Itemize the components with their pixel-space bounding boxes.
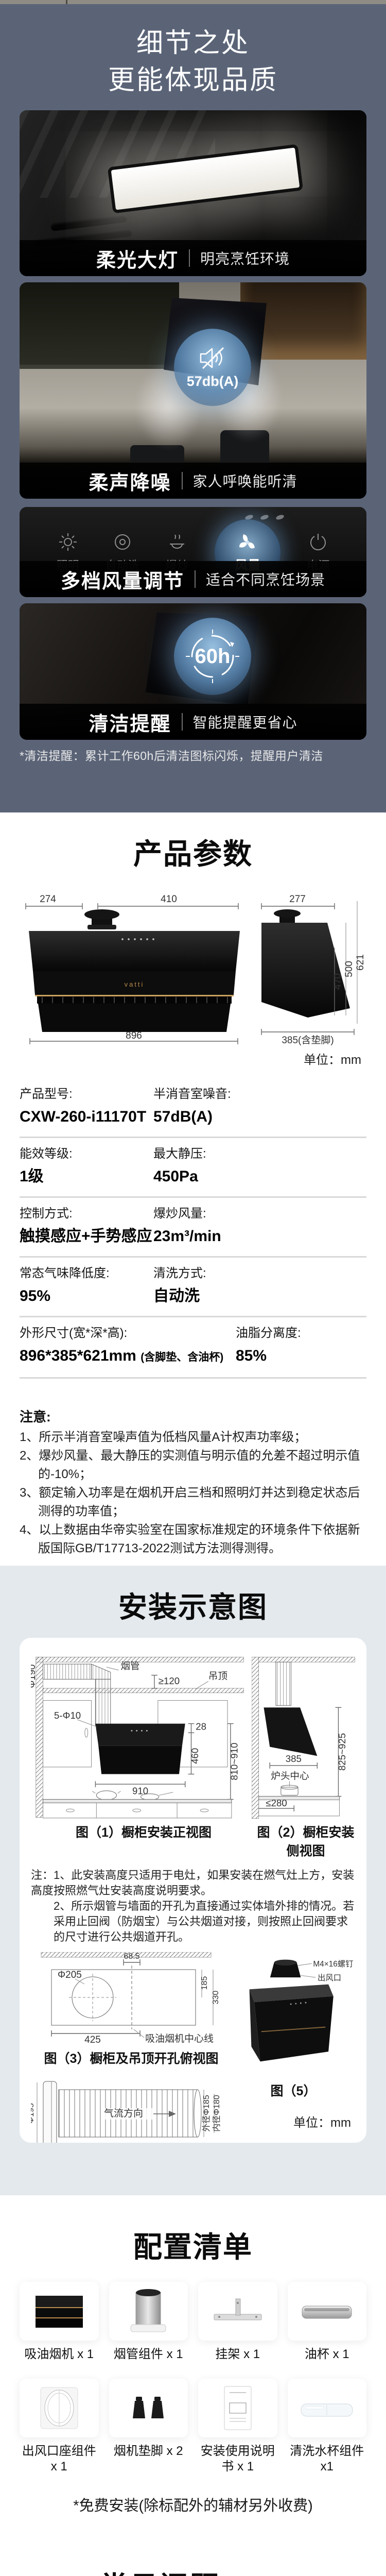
svg-text:28: 28 (196, 1721, 206, 1732)
svg-text:274: 274 (40, 894, 56, 905)
svg-text:460: 460 (189, 1748, 200, 1764)
autowash-icon (112, 532, 133, 552)
figure-1-front-install: 烟管 ≥120 吊顶 Φ190 5-Φ10 28 460 (31, 1655, 248, 1820)
bracket-thumb-icon (207, 2285, 269, 2337)
note-item: 1、所示半消音室噪声值为低档风量A计权声功率级； (20, 1428, 366, 1447)
config-item-label: 吸油烟机 x 1 (24, 2347, 94, 2362)
figure-4-duct: Φ195 气流方向 外径Φ185 内径Φ180 (31, 2072, 221, 2143)
config-item-bracket: 挂架 x 1 (198, 2282, 277, 2362)
note-item: 3、额定输入功率是在烟机开启三档和照明灯并达到稳定状态后测得的功率值； (20, 1484, 366, 1521)
svg-text:内径Φ180: 内径Φ180 (212, 2095, 221, 2132)
svg-text:气流方向: 气流方向 (104, 2108, 143, 2119)
svg-text:出风口: 出风口 (318, 1973, 341, 1982)
svg-text:277: 277 (289, 894, 306, 905)
spec-row: 产品型号:CXW-260-i11170T 半消音室噪音:57dB(A) (20, 1078, 366, 1138)
spec-value: 23m³/min (153, 1228, 366, 1245)
spec-value: 自动洗 (153, 1287, 366, 1305)
bracket-thumb (198, 2282, 277, 2341)
config-item-label: 安装使用说明书 x 1 (198, 2444, 277, 2475)
product-params-section: 产品参数 274 410 vatti (0, 812, 386, 1566)
cleaning-cup-thumb-icon (296, 2382, 358, 2434)
svg-text:385: 385 (286, 1753, 302, 1764)
config-title: 配置清单 (0, 2232, 386, 2262)
config-item-label: 烟管组件 x 1 (114, 2347, 183, 2362)
feature-title: 清洁提醒 (89, 708, 171, 736)
outlet-seat-thumb-icon (28, 2382, 90, 2434)
dimension-drawing: 274 410 vatti 896 277 (20, 894, 366, 1048)
caption-bar: 柔光大灯 明亮烹饪环境 (20, 240, 366, 276)
feet-thumb (109, 2379, 188, 2437)
feature-subtitle: 家人呼唤能听清 (193, 470, 297, 491)
spec-label: 外形尺寸(宽*深*高): (20, 1327, 236, 1340)
config-item-cleaning-cup: 清洗水杯组件x1 (288, 2379, 367, 2475)
feature-card-clean-reminder: 60h 清洁提醒 智能提醒更省心 (20, 603, 366, 740)
clean-badge: 60h (174, 618, 251, 695)
spec-row: 外形尺寸(宽*深*高): 896*385*621mm (含脚垫、含油杯) 油脂分… (20, 1317, 366, 1379)
manual-thumb (198, 2379, 277, 2437)
oilcup-thumb (288, 2282, 367, 2341)
config-item-manual: 安装使用说明书 x 1 (198, 2379, 277, 2475)
spec-label: 控制方式: (20, 1207, 153, 1221)
fan-icon (236, 531, 259, 554)
install-notes: 注：1、此安装高度只适用于电灶，如果安装在燃气灶上方，安装高度按照燃气灶安装高度… (31, 1868, 355, 1945)
mute-speaker-icon (199, 346, 226, 370)
note-item: 2、爆炒风量、最大静压的实测值与明示值的允差不超过明示值的-10%； (20, 1447, 366, 1484)
spec-notes: 注意: 1、所示半消音室噪声值为低档风量A计权声功率级； 2、爆炒风量、最大静压… (20, 1408, 366, 1558)
spec-row: 能效等级:1级 最大静压:450Pa (20, 1138, 366, 1198)
oilcup-thumb-icon (296, 2285, 358, 2337)
figure-3-caption: 图（3）橱柜及吊顶开孔俯视图 (31, 2048, 232, 2067)
config-footnote: *免费安装(除标配外的辅材另外收费) (0, 2497, 386, 2515)
figure-5-caption: 图（5） (271, 2081, 317, 2099)
config-section: 配置清单 吸油烟机 x 1 (0, 2195, 386, 2576)
spec-value: CXW-260-i11170T (20, 1108, 153, 1126)
install-card: 烟管 ≥120 吊顶 Φ190 5-Φ10 28 460 (20, 1638, 366, 2143)
config-item-label: 油杯 x 1 (305, 2347, 349, 2362)
hood-thumb-icon (28, 2285, 90, 2337)
note-prefix: 注： (31, 1869, 54, 1882)
svg-text:吸油烟机中心线: 吸油烟机中心线 (145, 2033, 214, 2044)
spec-label: 油脂分离度: (236, 1327, 366, 1340)
hero-title: 细节之处 更能体现品质 (0, 25, 386, 99)
config-item-outlet-seat: 出风口座组件 x 1 (20, 2379, 99, 2475)
spec-value: 57dB(A) (153, 1108, 366, 1126)
hero-section: 细节之处 更能体现品质 柔光大灯 明亮烹饪环境 (0, 4, 386, 812)
svg-text:825~925: 825~925 (337, 1733, 347, 1771)
config-grid: 吸油烟机 x 1 烟管组件 x 1 挂架 x 1 (20, 2282, 366, 2475)
feature-card-low-noise: 57db(A) 柔声降噪 家人呼唤能听清 (20, 282, 366, 499)
caption-bar: 多档风量调节 适合不同烹饪场景 (20, 561, 366, 597)
spec-label: 半消音室噪音: (153, 1088, 366, 1101)
figure-2-side-install: 385 825~925 炉头中心 ≤280 (252, 1655, 355, 1820)
svg-text:外径Φ185: 外径Φ185 (202, 2095, 211, 2132)
power-icon (308, 532, 328, 552)
noise-badge: 57db(A) (174, 329, 251, 406)
svg-text:810~910: 810~910 (229, 1743, 240, 1781)
svg-text:≥120: ≥120 (159, 1675, 180, 1686)
svg-text:烟管: 烟管 (120, 1660, 139, 1671)
svg-text:Φ190: Φ190 (31, 1665, 37, 1688)
feature-subtitle: 适合不同烹饪场景 (206, 569, 325, 589)
svg-text:410: 410 (161, 894, 177, 905)
spec-row: 常态气味降低度:95% 清洗方式:自动洗 (20, 1258, 366, 1317)
brand-logo: vatti (125, 980, 145, 988)
svg-text:185: 185 (200, 1976, 209, 1990)
config-item-label: 烟机垫脚 x 2 (114, 2444, 183, 2459)
svg-text:5-Φ10: 5-Φ10 (54, 1710, 81, 1721)
svg-text:≤280: ≤280 (266, 1798, 287, 1808)
install-note-2: 2、所示烟管与墙面的开孔为直接通过实体墙外排的情况。若采用止回阀（防烟宝）与公共… (31, 1899, 355, 1945)
feature-title: 多档风量调节 (61, 565, 184, 594)
svg-text:896: 896 (126, 1030, 142, 1041)
feet-thumb-icon (117, 2382, 179, 2434)
figure-2-caption: 图（2）橱柜安装侧视图 (257, 1825, 355, 1858)
caption-divider (182, 713, 183, 731)
svg-text:炉头中心: 炉头中心 (271, 1770, 309, 1781)
notes-title: 注意: (20, 1408, 366, 1426)
feature-subtitle: 明亮烹饪环境 (200, 248, 290, 268)
clock-ring-icon (183, 626, 242, 686)
svg-text:425: 425 (84, 2035, 101, 2045)
install-note-1: 1、此安装高度只适用于电灶，如果安装在燃气灶上方，安装高度按照燃气灶安装高度说明… (31, 1869, 354, 1897)
front-view: 274 410 vatti 896 (26, 894, 240, 1044)
caption-bar: 柔声降噪 家人呼唤能听清 (20, 463, 366, 499)
config-item-feet: 烟机垫脚 x 2 (109, 2379, 188, 2475)
feature-card-soft-light: 柔光大灯 明亮烹饪环境 (20, 110, 366, 276)
side-view: 277 470 500 621 385(含垫脚) (261, 894, 366, 1046)
kitchen-cabinet-left (20, 282, 179, 369)
spec-value: 触摸感应+手势感应 (20, 1228, 153, 1245)
outlet-seat-thumb (20, 2379, 99, 2437)
figure-5-photo: M4×16螺钉 出风口 (232, 1952, 355, 2081)
feature-subtitle: 智能提醒更省心 (193, 711, 297, 732)
clean-reminder-footnote: *清洁提醒：累计工作60h后清洁图标闪烁，提醒用户清洁 (20, 746, 366, 764)
svg-text:385(含垫脚): 385(含垫脚) (282, 1035, 334, 1046)
config-item-hood: 吸油烟机 x 1 (20, 2282, 99, 2362)
dimension-diagram: 274 410 vatti 896 277 (20, 894, 366, 1064)
cleaning-cup-thumb (288, 2379, 367, 2437)
grille-slot (50, 214, 128, 231)
manual-thumb-icon (207, 2382, 269, 2434)
caption-bar: 清洁提醒 智能提醒更省心 (20, 704, 366, 740)
spec-value-note: (含脚垫、含油杯) (141, 1351, 223, 1363)
spec-label: 常态气味降低度: (20, 1267, 153, 1280)
spec-label: 清洗方式: (153, 1267, 366, 1280)
svg-text:Φ205: Φ205 (58, 1970, 82, 1980)
svg-text:621: 621 (355, 954, 366, 971)
svg-text:500: 500 (344, 961, 355, 977)
top-remnant-strip (0, 0, 386, 4)
light-icon (58, 532, 78, 552)
spec-value: 85% (236, 1347, 366, 1365)
svg-text:M4×16螺钉: M4×16螺钉 (313, 1959, 353, 1969)
qa-title: 常见问题Q&A (0, 2572, 386, 2576)
duct-thumb-icon (117, 2285, 179, 2337)
spec-value: 1级 (20, 1168, 153, 1185)
spec-label: 最大静压: (153, 1147, 366, 1161)
stirfry-icon (167, 532, 187, 552)
config-item-label: 清洗水杯组件x1 (288, 2444, 367, 2475)
duct-thumb (109, 2282, 188, 2341)
unit-note: 单位：mm (25, 1049, 361, 1064)
config-item-label: 挂架 x 1 (215, 2347, 260, 2362)
svg-text:吊顶: 吊顶 (208, 1670, 227, 1681)
feature-title: 柔声降噪 (89, 467, 171, 495)
divider (66, 0, 67, 4)
install-unit-note: 单位：mm (293, 2112, 351, 2130)
spec-label: 爆炒风量: (153, 1207, 366, 1221)
spec-value: 450Pa (153, 1168, 366, 1185)
spec-value: 896*385*621mm (含脚垫、含油杯) (20, 1347, 236, 1366)
config-item-duct: 烟管组件 x 1 (109, 2282, 188, 2362)
spec-row: 控制方式:触摸感应+手势感应 爆炒风量:23m³/min (20, 1198, 366, 1258)
feature-card-wind-levels: 照明 自动洗 爆炒 (20, 507, 366, 597)
note-item: 4、以上数据由华帝实验室在国家标准规定的环境条件下依据新版国际GB/T17713… (20, 1521, 366, 1558)
hood-thumb (20, 2282, 99, 2341)
caption-divider (195, 570, 196, 588)
svg-text:470: 470 (332, 973, 343, 990)
caption-divider (182, 472, 183, 489)
config-item-oilcup: 油杯 x 1 (288, 2282, 367, 2362)
spec-label: 产品型号: (20, 1088, 153, 1101)
figure-3-topview: 68.5 Φ205 425 185 330 吸油烟机中心线 (31, 1952, 221, 2045)
svg-text:68.5: 68.5 (124, 1952, 139, 1961)
install-section: 安装示意图 烟管 ≥120 吊顶 Φ190 (0, 1566, 386, 2195)
noise-value: 57db(A) (187, 374, 239, 389)
svg-text:330: 330 (212, 1991, 220, 2005)
caption-divider (189, 249, 190, 267)
spec-value: 95% (20, 1287, 153, 1305)
spec-label: 能效等级: (20, 1147, 153, 1161)
spec-table: 产品型号:CXW-260-i11170T 半消音室噪音:57dB(A) 能效等级… (20, 1078, 366, 1379)
figure-1-caption: 图（1）橱柜安装正视图 (76, 1825, 212, 1840)
hero-title-line2: 更能体现品质 (0, 62, 386, 99)
svg-text:Φ195: Φ195 (31, 2103, 36, 2124)
hero-title-line1: 细节之处 (0, 25, 386, 62)
feature-title: 柔光大灯 (96, 244, 179, 273)
params-title: 产品参数 (0, 839, 386, 869)
install-title: 安装示意图 (0, 1592, 386, 1622)
config-item-label: 出风口座组件 x 1 (20, 2444, 99, 2475)
